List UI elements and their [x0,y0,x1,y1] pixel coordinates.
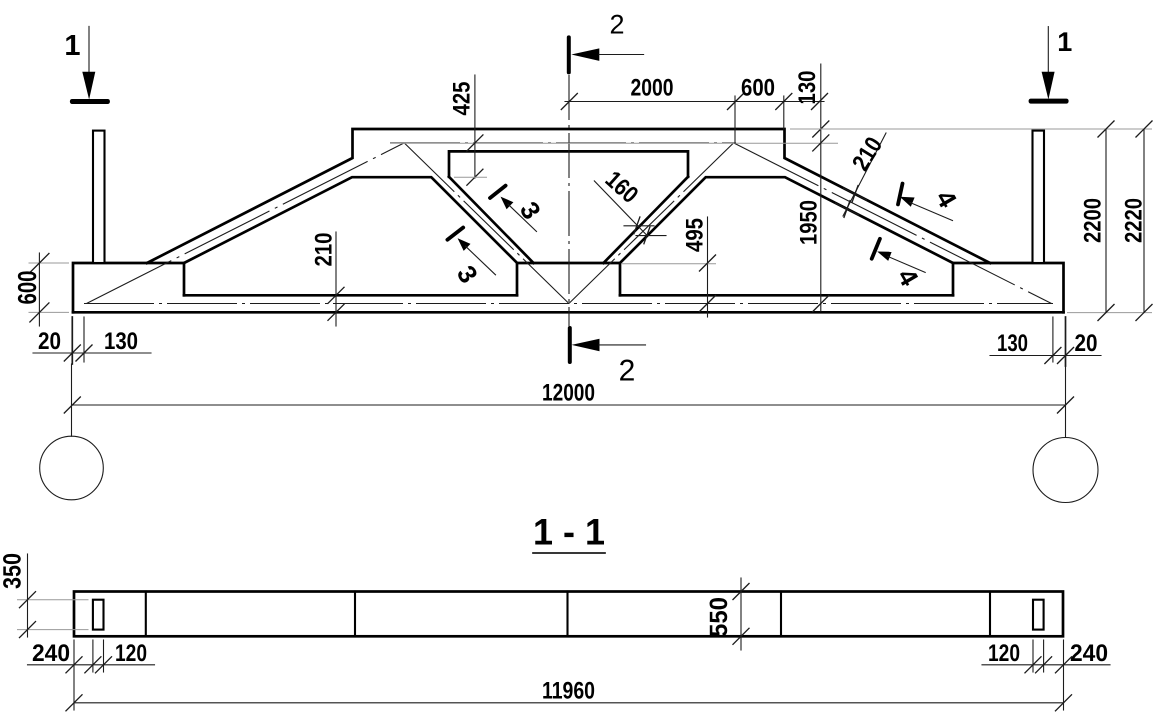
svg-text:11960: 11960 [542,678,595,705]
svg-text:1: 1 [64,30,80,62]
svg-text:600: 600 [741,75,775,102]
svg-text:2000: 2000 [631,75,674,102]
svg-text:20: 20 [1075,330,1098,357]
svg-text:20: 20 [38,328,61,355]
svg-text:120: 120 [115,640,147,667]
svg-text:12000: 12000 [542,379,595,406]
svg-text:130: 130 [104,328,138,355]
svg-text:350: 350 [0,553,27,589]
svg-text:2: 2 [619,355,636,388]
svg-text:130: 130 [794,71,821,105]
svg-text:130: 130 [997,330,1028,357]
svg-text:1 - 1: 1 - 1 [533,512,605,553]
svg-text:1950: 1950 [796,200,823,245]
svg-text:550: 550 [705,597,733,637]
svg-text:240: 240 [32,640,70,667]
svg-text:2: 2 [609,9,624,39]
svg-text:120: 120 [988,640,1020,667]
svg-text:600: 600 [12,271,42,305]
svg-text:240: 240 [1070,640,1108,667]
svg-text:425: 425 [449,82,476,116]
svg-text:210: 210 [311,233,338,267]
svg-text:2220: 2220 [1121,198,1148,243]
svg-text:1: 1 [1057,27,1072,57]
svg-text:495: 495 [682,218,709,252]
svg-text:2200: 2200 [1080,198,1107,243]
